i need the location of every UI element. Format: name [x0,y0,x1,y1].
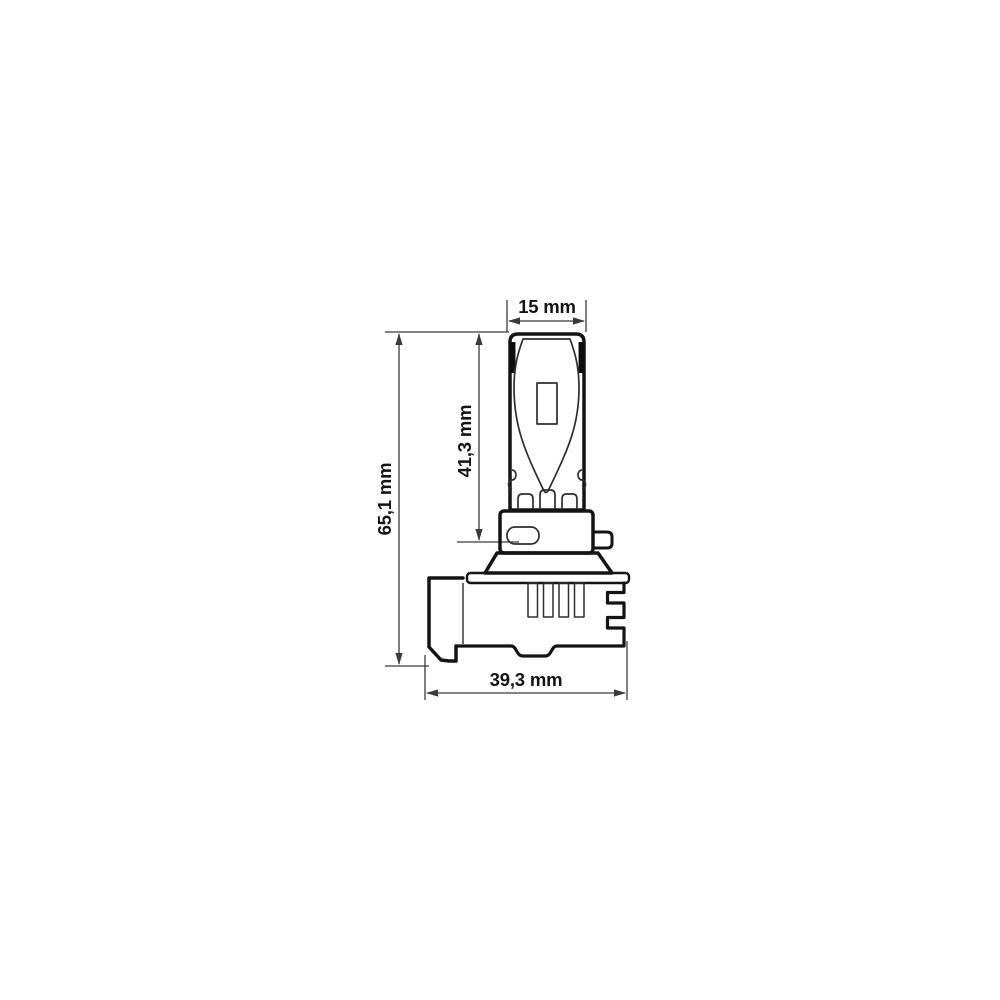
dim-label-upper-height: 41,3 mm [454,405,475,478]
arrowhead-down [475,529,482,541]
arrowhead-left [426,689,438,696]
base-connector [429,578,463,661]
dim-label-total-height: 65,1 mm [374,463,395,536]
cooling-fins [528,583,584,617]
led-bulb-drawing [429,334,629,661]
bulb-inner-reflector [514,339,579,493]
technical-drawing-canvas: 15 mm 65,1 mm 41,3 mm 39,3 mm [0,0,1000,1000]
bulb-dimension-diagram: 15 mm 65,1 mm 41,3 mm 39,3 mm [0,0,1000,1000]
base-outline-castellation [456,583,624,656]
dim-label-top-width: 15 mm [518,296,576,317]
dimension-lines [385,300,627,700]
led-chip [537,383,557,424]
arrowhead-up [395,333,402,345]
arrowhead-left [508,317,520,324]
socket-tab [592,532,612,548]
dim-label-base-width: 39,3 mm [490,669,563,690]
bulb-prongs [518,490,577,511]
bulb-tube [509,334,586,510]
base-body [429,578,624,661]
arrowhead-right [573,317,585,324]
arrowhead-right [614,689,626,696]
bulb-socket-block [500,511,612,553]
arrowhead-up [475,333,482,345]
arrowhead-down [395,653,402,665]
socket-flange [485,553,612,573]
